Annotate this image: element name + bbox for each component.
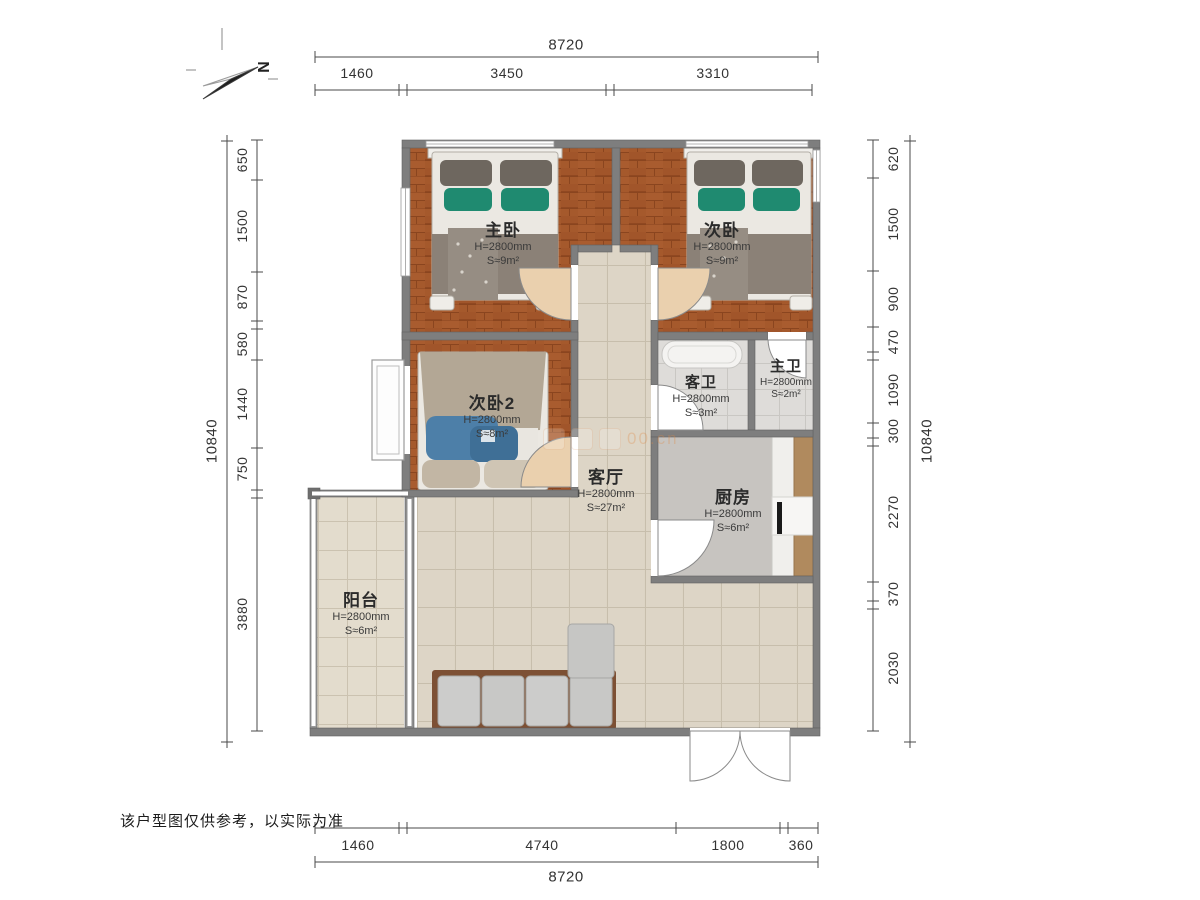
dim-bottom-seg-1: 4740 bbox=[525, 837, 558, 853]
dim-bottom-seg-2: 1800 bbox=[711, 837, 744, 853]
bedroom2-window-right bbox=[813, 150, 820, 202]
balcony-name: 阳台 bbox=[332, 590, 389, 611]
dim-left-total: 10840 bbox=[204, 419, 221, 463]
master-bath-name: 主卫 bbox=[760, 358, 812, 377]
dim-right-seg-2: 900 bbox=[885, 287, 901, 312]
dim-right-seg-4: 1090 bbox=[885, 373, 901, 406]
master-bath-area: S≈2m² bbox=[760, 389, 812, 402]
kitchen-counter bbox=[772, 437, 813, 576]
kitchen-name: 厨房 bbox=[704, 487, 761, 508]
master-bedroom-window-top bbox=[426, 141, 554, 147]
balcony-area: S≈6m² bbox=[332, 625, 389, 639]
living-room-name: 客厅 bbox=[577, 467, 634, 488]
north-arrow-icon bbox=[203, 67, 258, 99]
kitchen-area: S≈6m² bbox=[704, 522, 761, 536]
dim-bottom-seg-0: 1460 bbox=[341, 837, 374, 853]
north-label: N bbox=[253, 61, 271, 73]
master-bedroom-ceiling: H=2800mm bbox=[474, 241, 531, 255]
living-room-area: S≈27m² bbox=[577, 502, 634, 516]
bedroom2-name: 次卧 bbox=[693, 220, 750, 241]
floor-plan-drawing bbox=[0, 0, 1200, 900]
room-label-master-bath: 主卫 H=2800mm S≈2m² bbox=[760, 358, 812, 402]
dim-left-seg-3: 580 bbox=[234, 332, 250, 357]
balcony-ceiling: H=2800mm bbox=[332, 611, 389, 625]
hallway-floor bbox=[578, 245, 651, 497]
balcony-window-left bbox=[312, 499, 316, 726]
dim-left-seg-4: 1440 bbox=[234, 387, 250, 420]
guest-bath-ceiling: H=2800mm bbox=[672, 393, 729, 407]
master-bedroom-area: S≈9m² bbox=[474, 255, 531, 269]
bedroom2-ceiling: H=2800mm bbox=[693, 241, 750, 255]
dim-right-seg-6: 2270 bbox=[885, 495, 901, 528]
dim-bottom-seg-3: 360 bbox=[789, 837, 814, 853]
room-label-balcony: 阳台 H=2800mm S≈6m² bbox=[332, 590, 389, 639]
dim-right-seg-3: 470 bbox=[885, 330, 901, 355]
room-label-guest-bath: 客卫 H=2800mm S≈3m² bbox=[672, 374, 729, 420]
dim-left-seg-2: 870 bbox=[234, 285, 250, 310]
room-label-bedroom2: 次卧 H=2800mm S≈9m² bbox=[693, 220, 750, 269]
bathtub bbox=[662, 341, 742, 368]
guest-bath-name: 客卫 bbox=[672, 374, 729, 393]
balcony-window-top bbox=[312, 492, 408, 496]
dim-left-seg-1: 1500 bbox=[234, 209, 250, 242]
dim-top-seg-1: 3450 bbox=[490, 65, 523, 81]
room-label-kitchen: 厨房 H=2800mm S≈6m² bbox=[704, 487, 761, 536]
dim-left-seg-5: 750 bbox=[234, 457, 250, 482]
dim-right-seg-7: 370 bbox=[885, 582, 901, 607]
bedroom2-window-top bbox=[686, 141, 808, 147]
dim-right-total: 10840 bbox=[919, 419, 936, 463]
dim-bottom-total: 8720 bbox=[548, 869, 583, 886]
bedroom3-name: 次卧2 bbox=[463, 393, 520, 414]
master-bedroom-name: 主卧 bbox=[474, 220, 531, 241]
bedroom3-bay-window bbox=[372, 360, 410, 460]
bedroom3-area: S≈8m² bbox=[463, 428, 520, 442]
dim-right-seg-5: 300 bbox=[885, 419, 901, 444]
balcony-living-glass-divider bbox=[408, 499, 412, 726]
dim-left-seg-6: 3880 bbox=[234, 597, 250, 630]
room-label-bedroom3: 次卧2 H=2800mm S≈8m² bbox=[463, 393, 520, 442]
dim-right-seg-8: 2030 bbox=[885, 651, 901, 684]
bedroom2-area: S≈9m² bbox=[693, 255, 750, 269]
floor-plan-page: N 8720 1460 3450 3310 1460 4740 1800 360… bbox=[0, 0, 1200, 900]
entrance-double-door bbox=[690, 731, 790, 781]
living-room-ceiling: H=2800mm bbox=[577, 488, 634, 502]
guest-bath-area: S≈3m² bbox=[672, 407, 729, 421]
dim-top-seg-2: 3310 bbox=[696, 65, 729, 81]
master-bath-ceiling: H=2800mm bbox=[760, 377, 812, 390]
dim-top-total: 8720 bbox=[548, 37, 583, 54]
kitchen-ceiling: H=2800mm bbox=[704, 508, 761, 522]
dim-top-seg-0: 1460 bbox=[340, 65, 373, 81]
dim-right-seg-1: 1500 bbox=[885, 207, 901, 240]
dim-right-seg-0: 620 bbox=[885, 147, 901, 172]
room-label-living-room: 客厅 H=2800mm S≈27m² bbox=[577, 467, 634, 516]
bedroom3-ceiling: H=2800mm bbox=[463, 414, 520, 428]
master-bedroom-window-left bbox=[401, 188, 410, 276]
dim-left-seg-0: 650 bbox=[234, 148, 250, 173]
disclaimer-text: 该户型图仅供参考，以实际为准 bbox=[120, 810, 344, 831]
room-label-master-bedroom: 主卧 H=2800mm S≈9m² bbox=[474, 220, 531, 269]
